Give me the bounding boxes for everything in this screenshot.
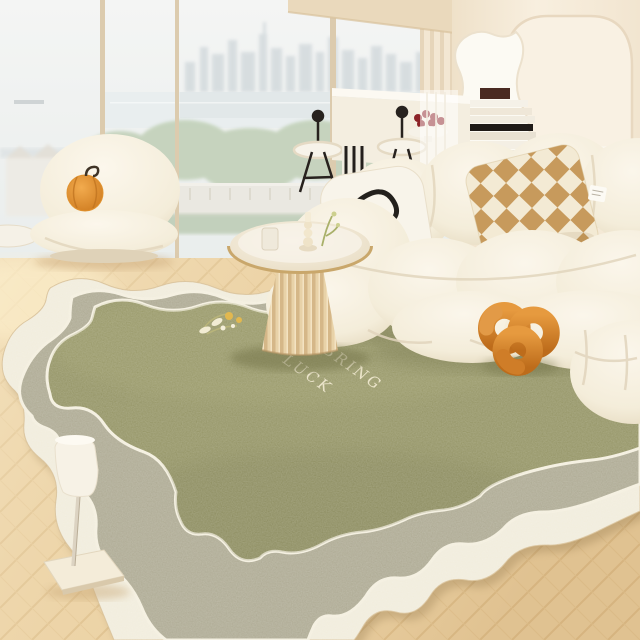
sofa-tag xyxy=(588,185,607,203)
lamp-shade-top xyxy=(55,435,95,445)
lamp-shade xyxy=(55,437,98,497)
knot-pillow xyxy=(482,310,558,375)
boat xyxy=(14,100,44,104)
scene-canvas: BRING LUCK xyxy=(0,0,640,640)
living-room-product-photo: BRING LUCK xyxy=(0,0,640,640)
glass-cup xyxy=(262,228,278,250)
